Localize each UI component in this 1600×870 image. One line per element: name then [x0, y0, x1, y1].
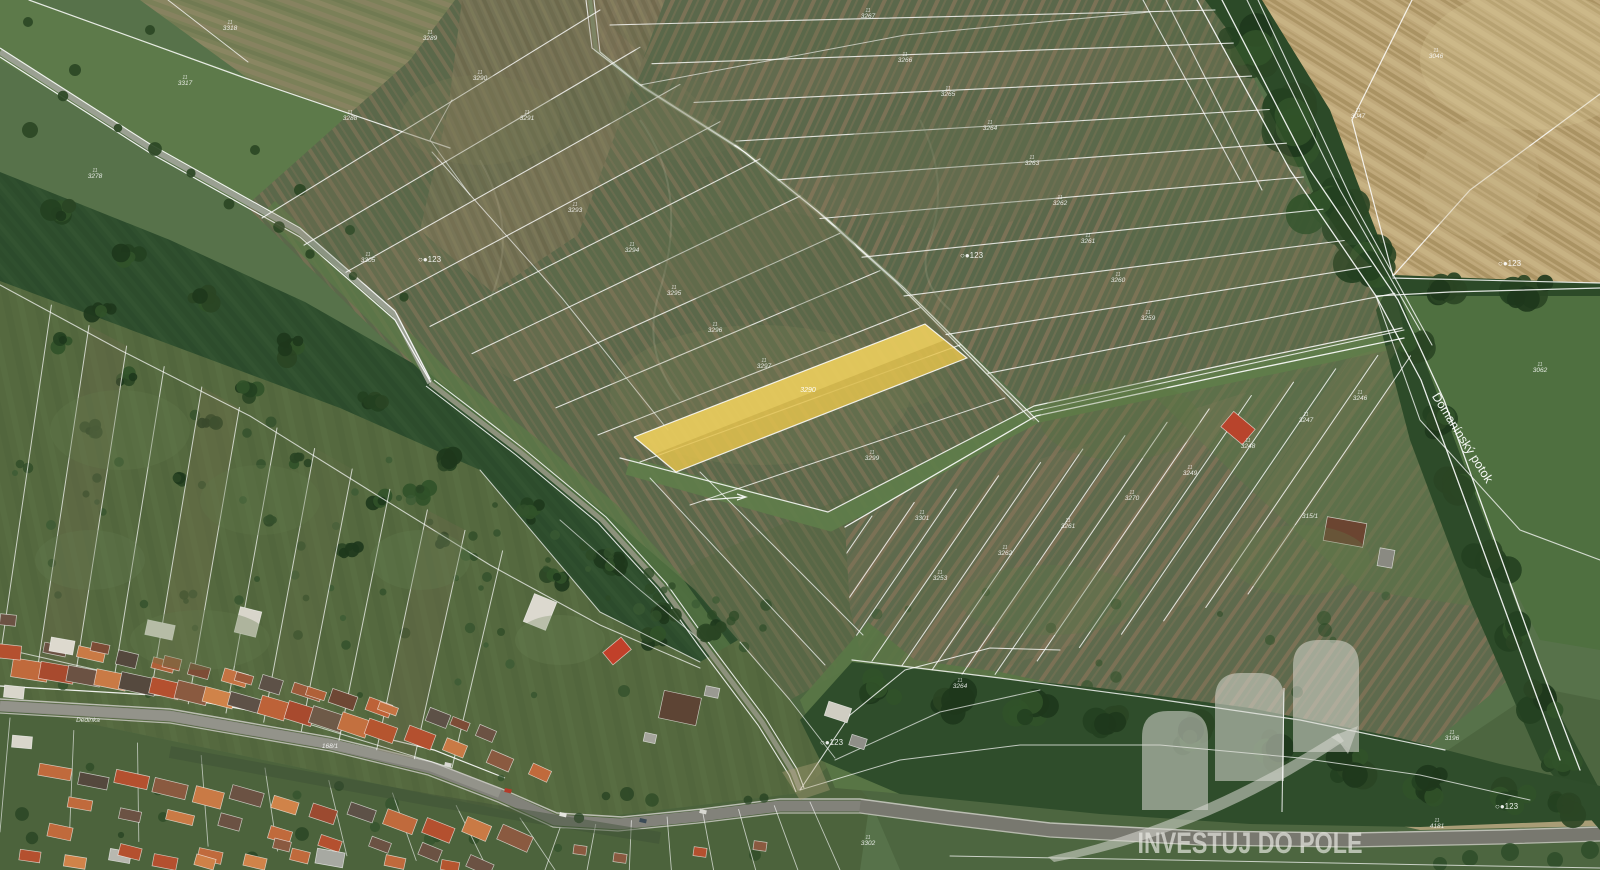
svg-text:3290: 3290	[800, 387, 816, 394]
svg-text:3295: 3295	[667, 290, 682, 297]
svg-text:3301: 3301	[915, 515, 930, 522]
svg-text:3305: 3305	[361, 257, 376, 264]
svg-text:3302: 3302	[861, 840, 876, 847]
svg-text:3247: 3247	[1299, 417, 1314, 424]
svg-text:3288: 3288	[343, 115, 358, 122]
svg-text:3259: 3259	[1141, 315, 1156, 322]
svg-text:3062: 3062	[1533, 367, 1548, 374]
svg-text:3262: 3262	[1053, 200, 1068, 207]
svg-text:3262: 3262	[998, 550, 1013, 557]
svg-text:3293: 3293	[568, 207, 583, 214]
svg-text:315/1: 315/1	[1302, 513, 1319, 520]
svg-text:3270: 3270	[1125, 495, 1140, 502]
svg-text:○●123: ○●123	[820, 738, 844, 747]
svg-text:3289: 3289	[423, 35, 438, 42]
svg-text:○●123: ○●123	[960, 251, 984, 260]
svg-text:3261: 3261	[1081, 238, 1096, 245]
svg-text:3299: 3299	[865, 455, 880, 462]
svg-text:3260: 3260	[1111, 277, 1126, 284]
svg-text:3318: 3318	[223, 25, 238, 32]
svg-text:3294: 3294	[625, 247, 640, 254]
svg-text:3263: 3263	[1025, 160, 1040, 167]
svg-text:3253: 3253	[933, 575, 948, 582]
svg-text:3296: 3296	[708, 327, 723, 334]
svg-text:3046: 3046	[1429, 53, 1444, 60]
svg-text:3047: 3047	[1351, 113, 1366, 120]
svg-text:○●123: ○●123	[1495, 802, 1519, 811]
svg-text:3278: 3278	[88, 173, 103, 180]
svg-text:3317: 3317	[178, 80, 193, 87]
svg-text:3297: 3297	[757, 363, 772, 370]
svg-text:3264: 3264	[953, 683, 968, 690]
svg-text:3248: 3248	[1241, 443, 1256, 450]
svg-text:3261: 3261	[1061, 523, 1076, 530]
svg-text:3267: 3267	[861, 13, 876, 20]
svg-text:3291: 3291	[520, 115, 535, 122]
svg-text:3290: 3290	[473, 75, 488, 82]
svg-text:Dedinka: Dedinka	[76, 717, 100, 724]
svg-text:INVESTUJ DO POLE: INVESTUJ DO POLE	[1138, 827, 1363, 860]
svg-text:4181: 4181	[1430, 823, 1445, 830]
svg-text:168/1: 168/1	[322, 743, 339, 750]
svg-text:3249: 3249	[1183, 470, 1198, 477]
svg-text:3264: 3264	[983, 125, 998, 132]
svg-text:3266: 3266	[898, 57, 913, 64]
svg-text:3196: 3196	[1445, 735, 1460, 742]
svg-text:○●123: ○●123	[1498, 259, 1522, 268]
svg-text:○●123: ○●123	[418, 255, 442, 264]
svg-text:3265: 3265	[941, 91, 956, 98]
svg-text:3246: 3246	[1353, 395, 1368, 402]
